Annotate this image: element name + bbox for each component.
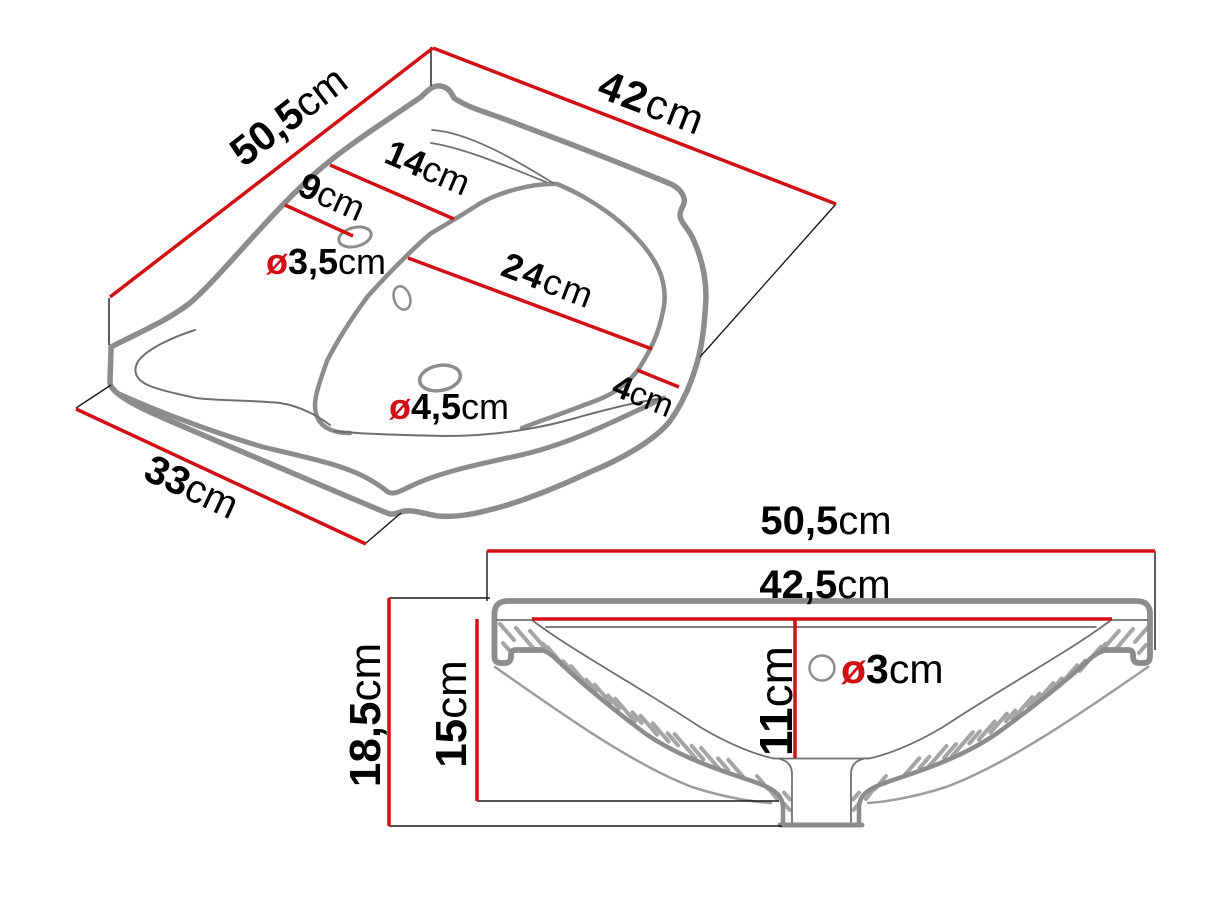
svg-text:ø3cm: ø3cm <box>841 646 944 692</box>
svg-text:11cm: 11cm <box>750 646 802 756</box>
svg-text:18,5cm: 18,5cm <box>341 643 390 787</box>
svg-text:ø4,5cm: ø4,5cm <box>389 386 509 427</box>
svg-text:15cm: 15cm <box>427 660 476 768</box>
svg-text:ø3,5cm: ø3,5cm <box>266 241 386 282</box>
svg-text:50,5cm: 50,5cm <box>760 499 891 543</box>
svg-text:42,5cm: 42,5cm <box>759 563 890 607</box>
